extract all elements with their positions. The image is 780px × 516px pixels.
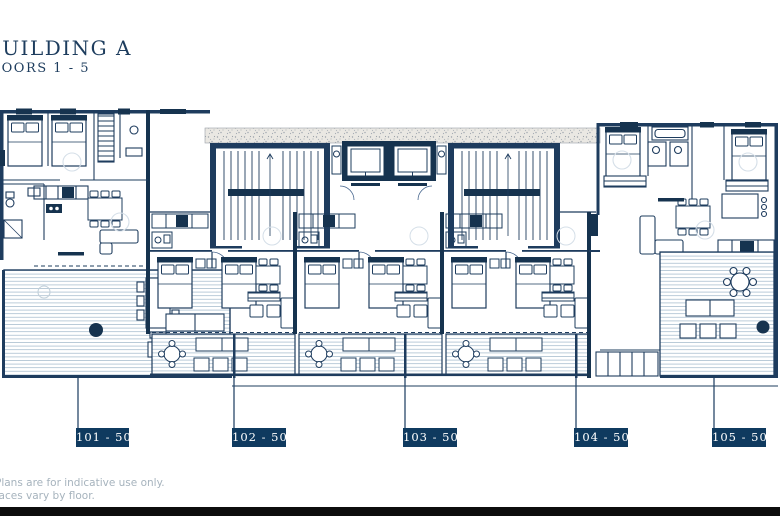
unit-103 <box>293 212 444 376</box>
unit-label-102-502[interactable]: 102 - 502 <box>232 428 286 447</box>
footer-bar <box>0 507 780 516</box>
page: BUILDING A FLOORS 1 - 5 101 - 501 102 - … <box>0 0 780 516</box>
unit-label-101-501[interactable]: 101 - 501 <box>76 428 129 447</box>
page-title: BUILDING A <box>0 36 132 60</box>
unit-102 <box>146 212 297 376</box>
stair-core-right <box>448 143 560 249</box>
elevator-bank <box>332 141 446 186</box>
unit-101-interior <box>0 109 210 267</box>
unit-104 <box>440 212 591 376</box>
page-subtitle: FLOORS 1 - 5 <box>0 61 90 76</box>
stair-core-left <box>210 143 330 249</box>
unit-label-103-503[interactable]: 103 - 503 <box>403 428 457 447</box>
unit-label-105-505[interactable]: 105 - 505 <box>712 428 766 447</box>
disclaimer-line-1: Plans are for indicative use only. <box>0 477 165 489</box>
terrace-105 <box>660 252 778 378</box>
corridor-band <box>205 128 600 143</box>
unit-label-104-504[interactable]: 104 - 504 <box>574 428 628 447</box>
disclaimer-line-2: Terraces vary by floor. <box>0 490 95 502</box>
